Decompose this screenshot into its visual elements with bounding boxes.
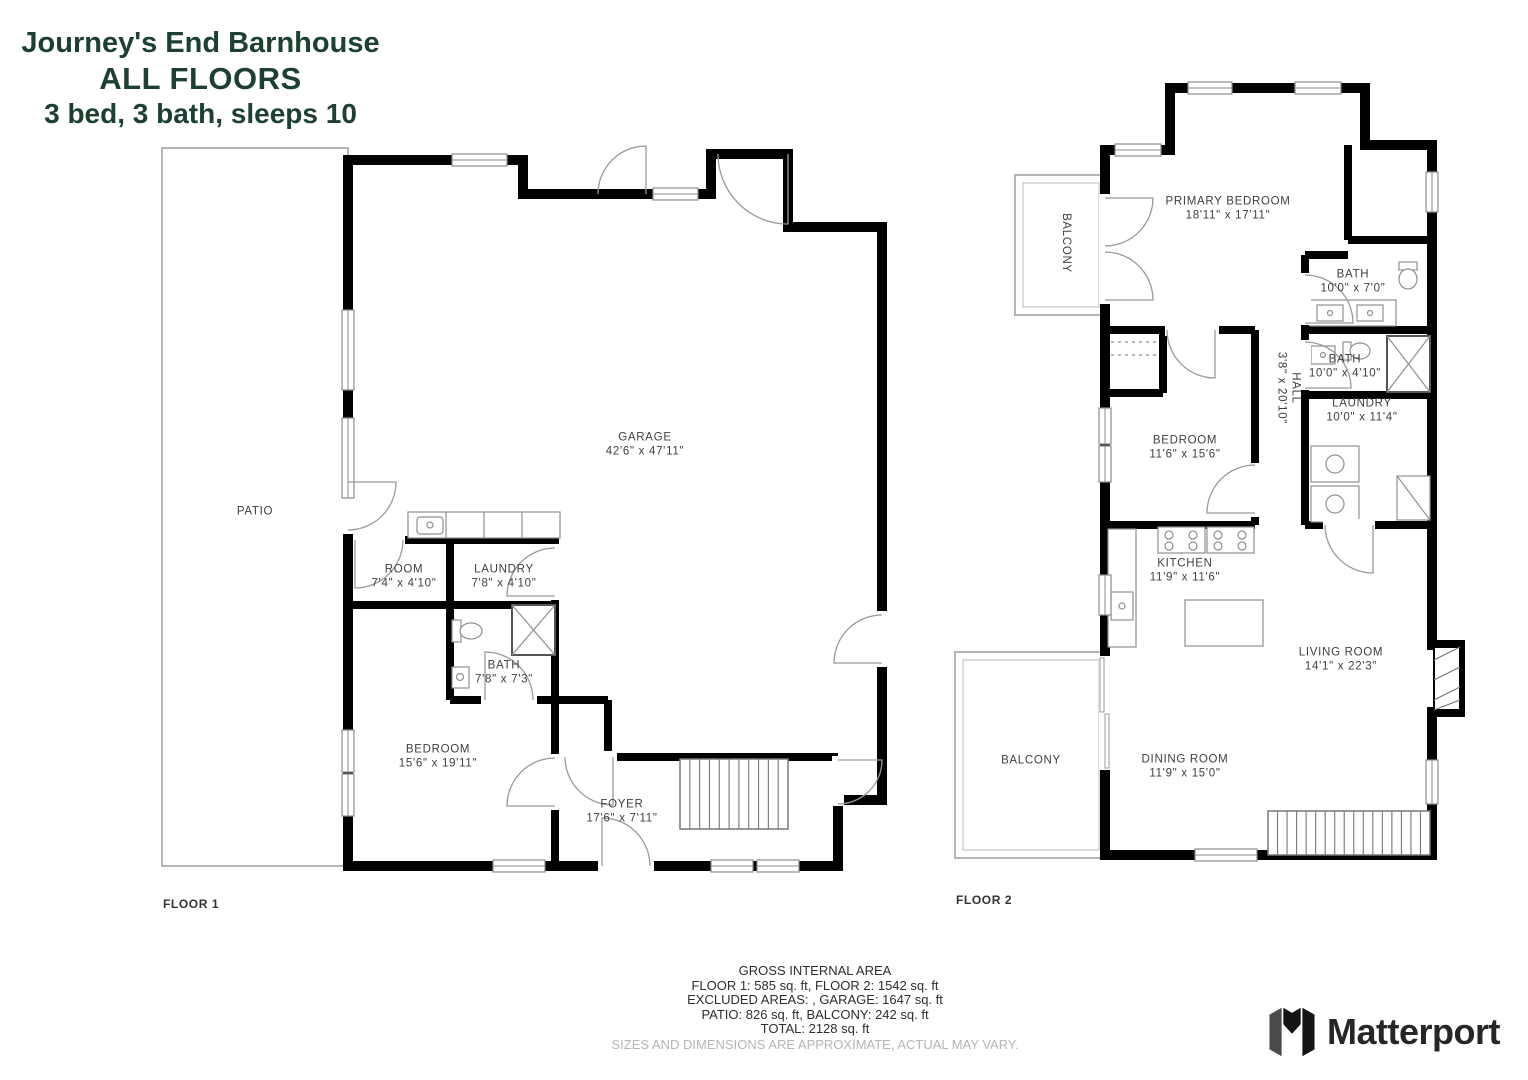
stairs xyxy=(680,759,788,829)
room-label-bath2-f2: BATH 10'0" x 4'10" xyxy=(1309,354,1381,381)
room-dims: 18'11" x 17'11" xyxy=(1165,209,1290,223)
wall-opening xyxy=(832,756,844,806)
room-name: GARAGE xyxy=(618,432,671,444)
room-name: BALCONY xyxy=(1060,213,1072,273)
page-title: Journey's End Barnhouse ALL FLOORS 3 bed… xyxy=(8,26,393,131)
door-swing xyxy=(598,146,646,194)
floors-subtitle: ALL FLOORS xyxy=(8,61,393,97)
wall-opening xyxy=(561,751,617,763)
room-name: ROOM xyxy=(385,564,424,576)
area-line: EXCLUDED AREAS: , GARAGE: 1647 sq. ft xyxy=(612,993,1019,1008)
room-name: PRIMARY BEDROOM xyxy=(1165,196,1290,208)
room-label-laundry-f1: LAUNDRY 7'8" x 4'10" xyxy=(471,564,536,591)
room-dims: 42'6" x 47'11" xyxy=(606,445,684,459)
room-label-living-room: LIVING ROOM 14'1" x 22'3" xyxy=(1299,647,1383,674)
room-label-foyer: FOYER 17'6" x 7'11" xyxy=(586,799,657,826)
room-label-hall: HALL 3'8" x 20'10" xyxy=(1275,352,1302,424)
wall-opening xyxy=(598,860,654,872)
wall-opening xyxy=(1323,519,1375,531)
area-summary-title: GROSS INTERNAL AREA xyxy=(612,964,1019,979)
room-dims: 14'1" x 22'3" xyxy=(1299,660,1383,674)
wall-opening xyxy=(353,534,405,546)
room-name: BEDROOM xyxy=(406,744,470,756)
wall-opening xyxy=(1249,463,1261,517)
room-label-room: ROOM 7'4" x 4'10" xyxy=(371,564,436,591)
room-dims: 10'0" x 4'10" xyxy=(1309,367,1381,381)
wall-opening xyxy=(1165,324,1219,336)
room-name: BALCONY xyxy=(1001,754,1061,766)
wall-opening xyxy=(549,544,561,600)
room-dims: 7'4" x 4'10" xyxy=(371,577,436,591)
area-line: TOTAL: 2128 sq. ft xyxy=(612,1022,1019,1037)
room-name: KITCHEN xyxy=(1157,558,1212,570)
capacity-subtitle: 3 bed, 3 bath, sleeps 10 xyxy=(8,97,393,131)
room-name: HALL xyxy=(1290,372,1302,404)
matterport-wordmark: Matterport xyxy=(1327,1011,1500,1053)
wall-opening xyxy=(876,611,888,667)
room-dims: 10'0" x 11'4" xyxy=(1326,411,1397,425)
room-label-laundry-f2: LAUNDRY 10'0" x 11'4" xyxy=(1326,398,1397,425)
room-name: PATIO xyxy=(237,505,273,517)
room-dims: 7'8" x 4'10" xyxy=(471,577,536,591)
room-label-bath1-f2: BATH 10'0" x 7'0" xyxy=(1320,269,1385,296)
disclaimer-text: SIZES AND DIMENSIONS ARE APPROXIMATE, AC… xyxy=(612,1038,1019,1053)
property-name: Journey's End Barnhouse xyxy=(8,26,393,61)
room-label-garage: GARAGE 42'6" x 47'11" xyxy=(606,432,684,459)
area-line: FLOOR 1: 585 sq. ft, FLOOR 2: 1542 sq. f… xyxy=(612,979,1019,994)
room-label-dining-room: DINING ROOM 11'9" x 15'0" xyxy=(1142,754,1229,781)
room-dims: 11'9" x 15'0" xyxy=(1142,767,1229,781)
area-summary: GROSS INTERNAL AREA FLOOR 1: 585 sq. ft,… xyxy=(612,964,1019,1053)
room-name: LAUNDRY xyxy=(474,564,534,576)
room-label-bath-f1: BATH 7'8" x 7'3" xyxy=(475,660,533,687)
room-dims: 11'6" x 15'6" xyxy=(1149,448,1220,462)
room-label-bedroom-f2: BEDROOM 11'6" x 15'6" xyxy=(1149,435,1220,462)
room-name: BATH xyxy=(488,660,521,672)
floorplan-page: Journey's End Barnhouse ALL FLOORS 3 bed… xyxy=(0,0,1528,1080)
wall-opening xyxy=(1299,273,1311,325)
wall-opening xyxy=(1099,194,1111,304)
room-name: FOYER xyxy=(600,799,643,811)
room-dims: 17'6" x 7'11" xyxy=(586,812,657,826)
floor2-tag: FLOOR 2 xyxy=(956,893,1012,907)
wall-opening xyxy=(481,694,537,706)
room-label-kitchen: KITCHEN 11'9" x 11'6" xyxy=(1150,558,1220,585)
room-name: BATH xyxy=(1337,269,1370,281)
matterport-logo-icon xyxy=(1266,1004,1318,1060)
room-label-balcony-bottom: BALCONY xyxy=(1001,754,1061,768)
matterport-brand: Matterport xyxy=(1266,1004,1500,1060)
room-name: BEDROOM xyxy=(1153,435,1217,447)
room-label-balcony-top: BALCONY xyxy=(1058,213,1072,273)
floor1-tag: FLOOR 1 xyxy=(163,897,219,911)
area-line: PATIO: 826 sq. ft, BALCONY: 242 sq. ft xyxy=(612,1008,1019,1023)
room-dims: 11'9" x 11'6" xyxy=(1150,571,1220,585)
room-dims: 3'8" x 20'10" xyxy=(1275,352,1289,424)
room-label-bedroom-f1: BEDROOM 15'6" x 19'11" xyxy=(399,744,477,771)
room-name: BATH xyxy=(1329,354,1362,366)
room-label-primary-bedroom: PRIMARY BEDROOM 18'11" x 17'11" xyxy=(1165,196,1290,223)
room-dims: 15'6" x 19'11" xyxy=(399,757,477,771)
sliding-door xyxy=(1105,714,1109,768)
stairs xyxy=(1268,811,1430,855)
wall-opening xyxy=(549,754,561,810)
room-name: LAUNDRY xyxy=(1332,398,1392,410)
room-name: LIVING ROOM xyxy=(1299,647,1383,659)
sliding-door xyxy=(1100,658,1104,712)
room-name: DINING ROOM xyxy=(1142,754,1229,766)
room-label-patio: PATIO xyxy=(237,505,273,519)
room-dims: 10'0" x 7'0" xyxy=(1320,282,1385,296)
room-dims: 7'8" x 7'3" xyxy=(475,673,533,687)
